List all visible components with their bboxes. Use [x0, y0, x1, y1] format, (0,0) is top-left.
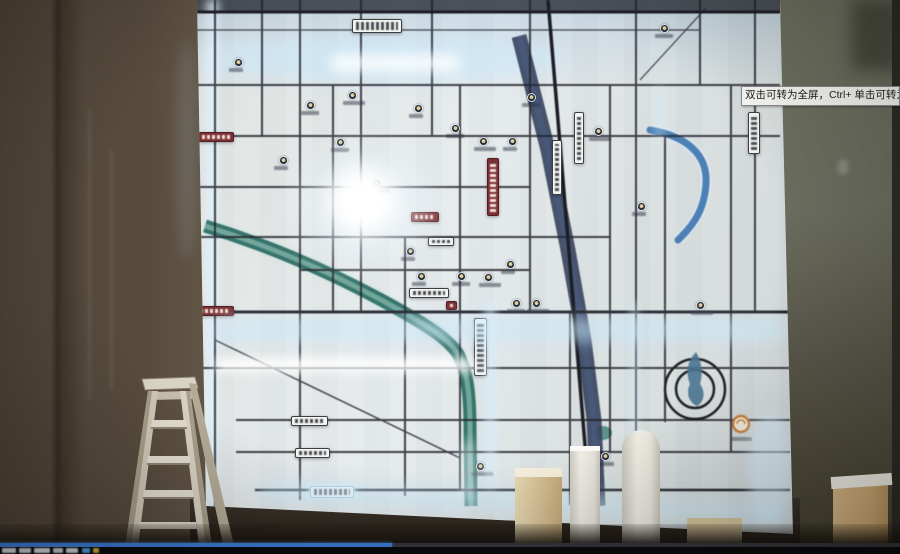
- control-bar-text-blur: [34, 548, 50, 553]
- bottom-shadow: [0, 524, 900, 544]
- video-player: 双击可转为全屏，Ctrl+ 单击可转为: [0, 0, 900, 554]
- control-bar-text-blur: [93, 548, 99, 553]
- control-bar-text-blur: [19, 548, 31, 553]
- player-control-bar[interactable]: [0, 547, 900, 554]
- control-bar-text-blur: [82, 548, 90, 553]
- step-ladder: [0, 0, 900, 554]
- control-bar-text-blur: [53, 548, 63, 553]
- video-frame[interactable]: [0, 0, 900, 554]
- control-bar-text-blur: [2, 548, 16, 553]
- control-bar-text-blur: [66, 548, 78, 553]
- fullscreen-tooltip: 双击可转为全屏，Ctrl+ 单击可转为: [741, 86, 900, 106]
